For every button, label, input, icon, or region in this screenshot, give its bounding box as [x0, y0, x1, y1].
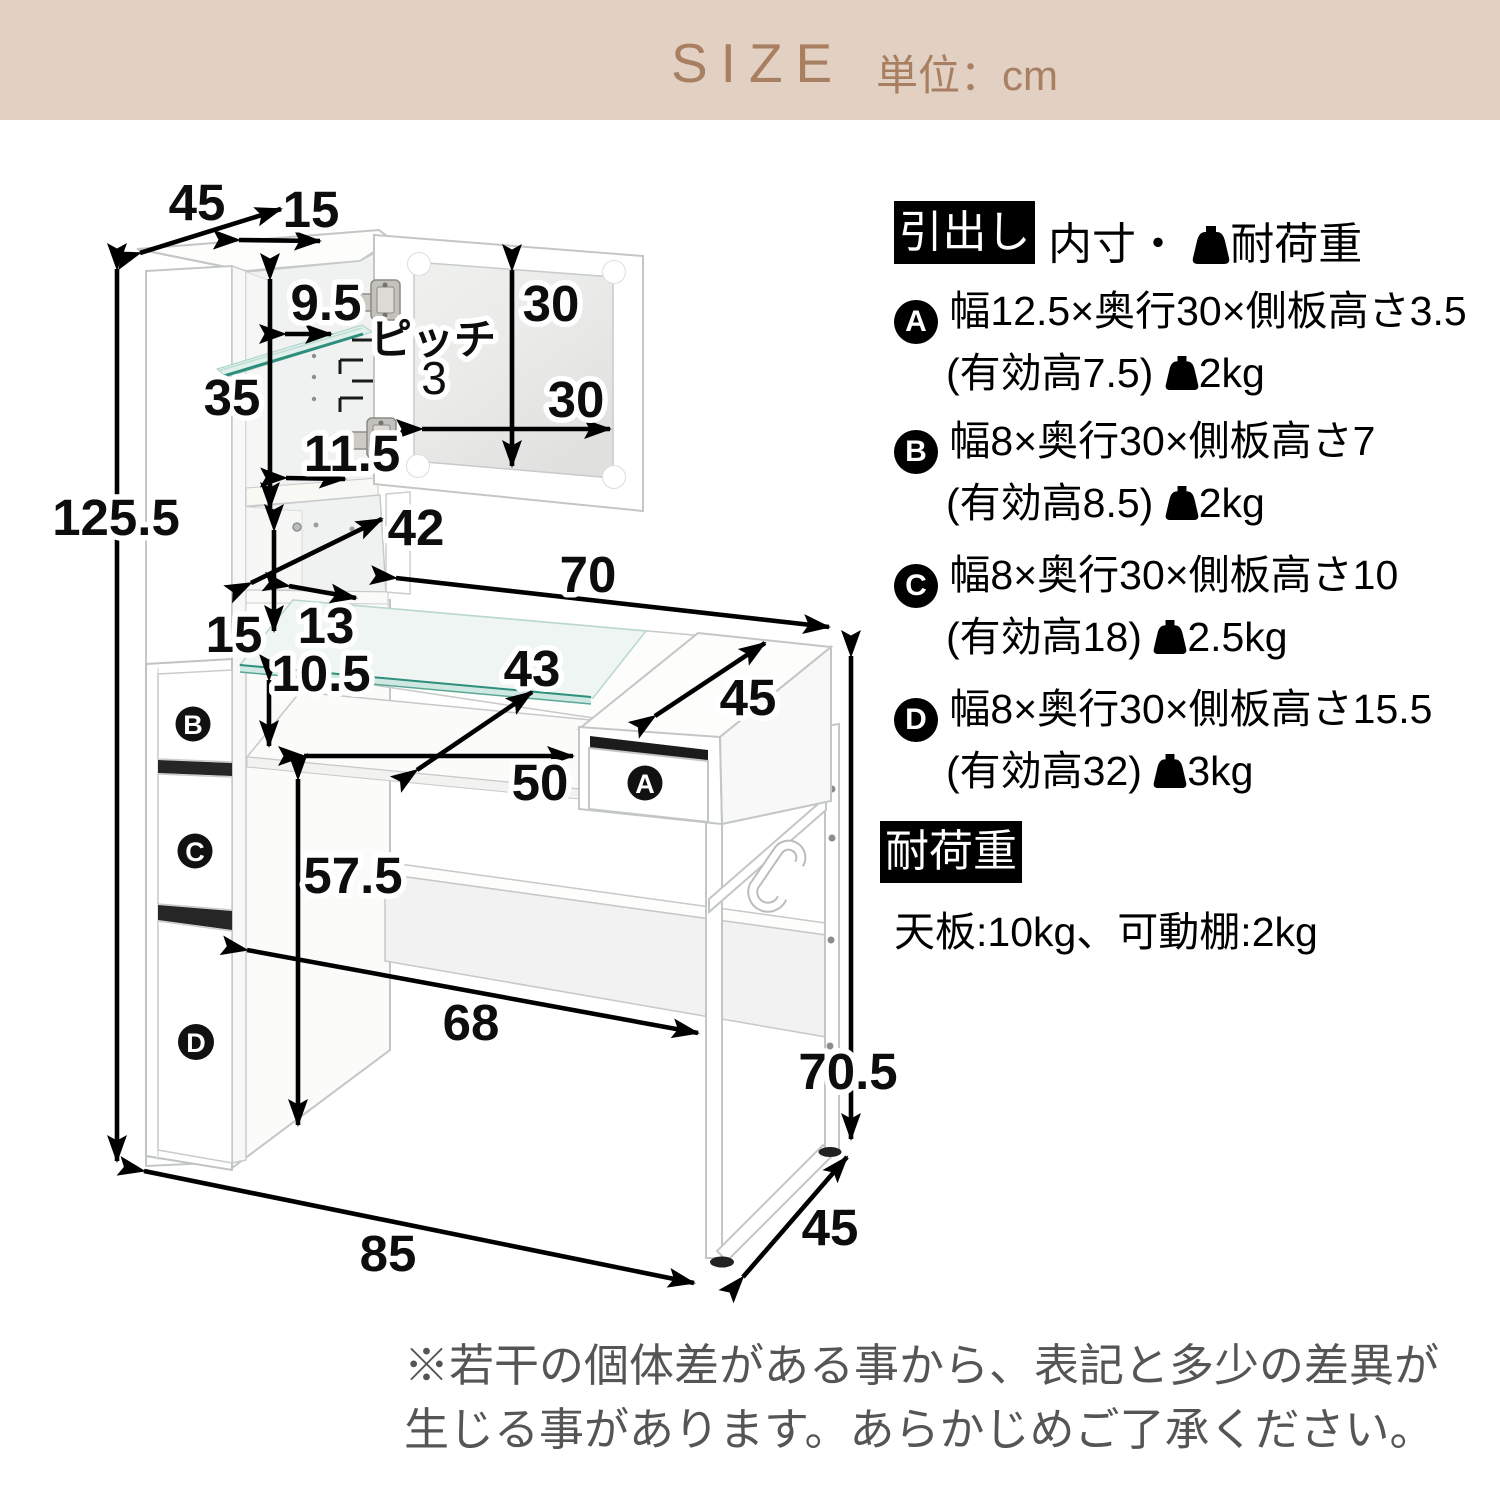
svg-text:45: 45 — [802, 1199, 859, 1256]
svg-text:42: 42 — [388, 499, 445, 556]
svg-text:50: 50 — [512, 754, 569, 811]
svg-text:B: B — [183, 710, 203, 740]
svg-text:57.5: 57.5 — [303, 847, 402, 904]
svg-text:C: C — [185, 837, 205, 867]
svg-text:10.5: 10.5 — [271, 645, 370, 702]
svg-text:68: 68 — [443, 994, 500, 1051]
svg-text:11.5: 11.5 — [304, 425, 400, 482]
svg-text:45: 45 — [169, 174, 226, 231]
svg-text:15: 15 — [283, 181, 340, 238]
svg-text:15: 15 — [206, 606, 263, 663]
svg-text:A: A — [635, 769, 655, 799]
svg-text:45: 45 — [720, 669, 777, 726]
svg-text:3: 3 — [421, 352, 447, 404]
svg-text:30: 30 — [548, 371, 605, 428]
svg-text:35: 35 — [204, 369, 261, 426]
svg-text:43: 43 — [504, 640, 561, 697]
svg-text:30: 30 — [523, 275, 580, 332]
svg-text:85: 85 — [360, 1225, 417, 1282]
svg-text:70.5: 70.5 — [798, 1043, 897, 1100]
svg-text:9.5: 9.5 — [291, 274, 362, 331]
svg-text:125.5: 125.5 — [52, 489, 180, 546]
svg-text:D: D — [186, 1028, 206, 1058]
svg-text:70: 70 — [560, 546, 617, 603]
